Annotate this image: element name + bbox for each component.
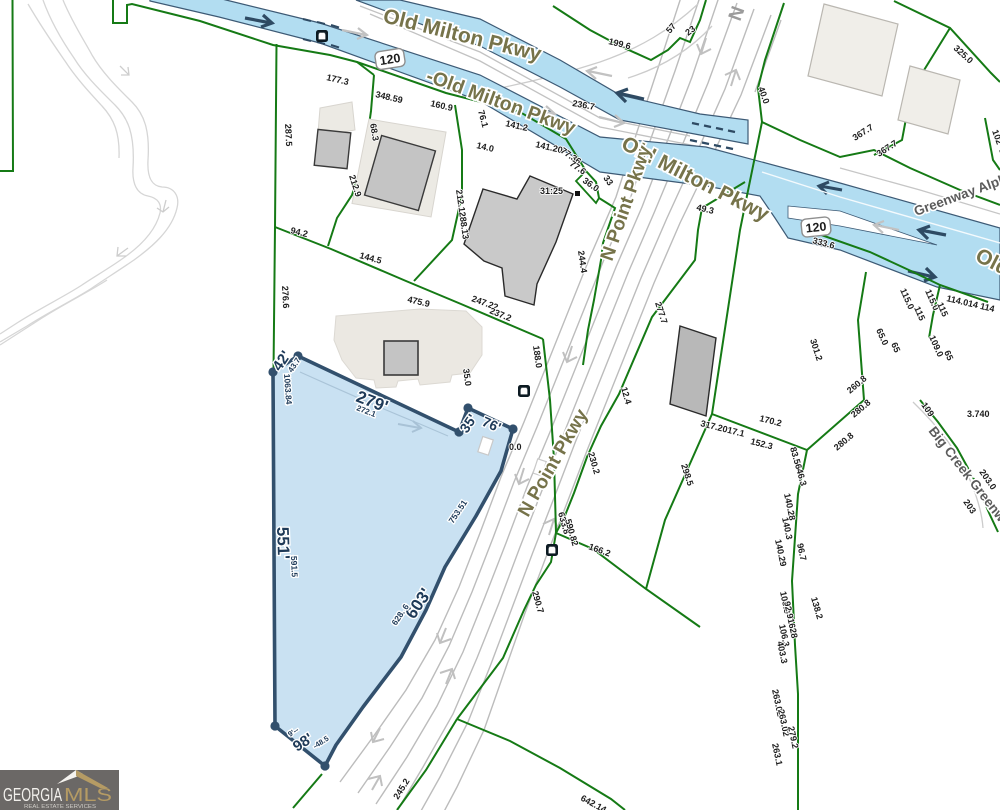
svg-text:287.5: 287.5 <box>283 124 294 147</box>
svg-text:REAL ESTATE SERVICES: REAL ESTATE SERVICES <box>24 804 96 810</box>
svg-text:GEORGIA: GEORGIA <box>3 785 62 805</box>
svg-text:0.0: 0.0 <box>509 442 522 452</box>
svg-text:591.5: 591.5 <box>289 556 300 578</box>
svg-text:31:25: 31:25 <box>540 186 563 196</box>
svg-text:551': 551' <box>273 526 293 559</box>
svg-text:276.6: 276.6 <box>280 286 291 309</box>
svg-text:120: 120 <box>805 219 827 235</box>
svg-text:3.740: 3.740 <box>967 409 990 419</box>
svg-text:MLS: MLS <box>64 785 112 805</box>
